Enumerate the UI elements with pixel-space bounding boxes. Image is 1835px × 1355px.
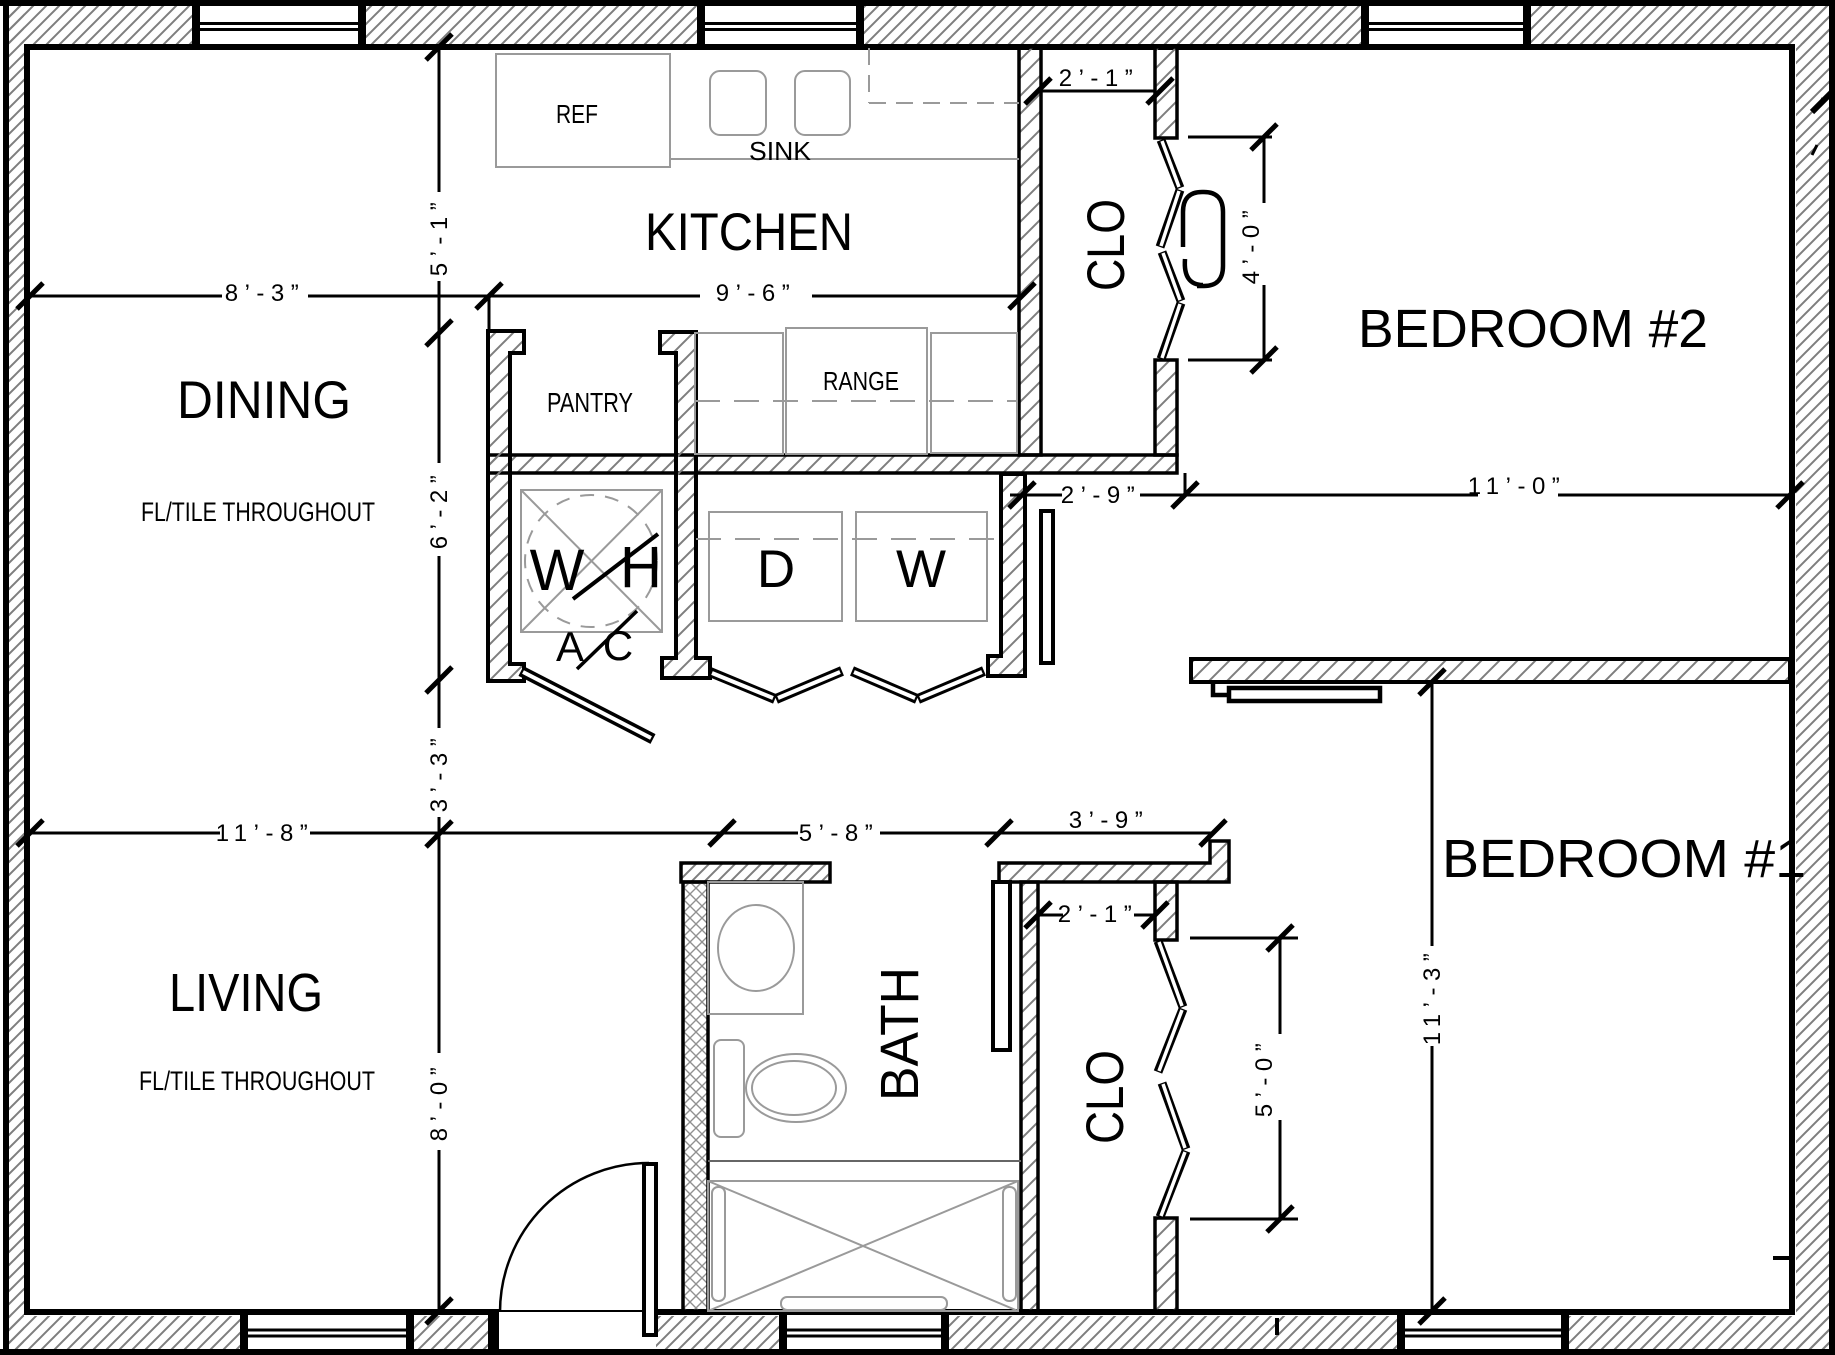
svg-text:DINING: DINING <box>177 371 351 430</box>
svg-text:5’-1”: 5’-1” <box>426 196 453 277</box>
svg-text:9’-6”: 9’-6” <box>716 280 797 307</box>
svg-text:BEDROOM #1: BEDROOM #1 <box>1442 829 1806 889</box>
svg-text:W: W <box>530 538 585 603</box>
svg-text:2’-1”: 2’-1” <box>1059 65 1140 92</box>
svg-text:8’-0”: 8’-0” <box>426 1061 453 1142</box>
svg-text:2’-9”: 2’-9” <box>1061 482 1142 509</box>
svg-text:11’-0”: 11’-0” <box>1468 473 1567 500</box>
svg-text:2’-1”: 2’-1” <box>1058 901 1139 928</box>
svg-text:LIVING: LIVING <box>169 963 323 1023</box>
svg-text:6’-2”: 6’-2” <box>426 469 453 550</box>
svg-text:11’-3”: 11’-3” <box>1419 947 1446 1046</box>
svg-text:SINK: SINK <box>749 136 812 166</box>
svg-text:5’-8”: 5’-8” <box>799 820 880 847</box>
svg-text:RANGE: RANGE <box>823 366 899 396</box>
svg-text:FL/TILE THROUGHOUT: FL/TILE THROUGHOUT <box>141 497 375 527</box>
svg-text:A: A <box>556 623 584 670</box>
svg-text:KITCHEN: KITCHEN <box>645 203 853 262</box>
svg-text:CLO: CLO <box>1077 199 1136 291</box>
svg-text:4’-0”: 4’-0” <box>1238 204 1265 285</box>
svg-text:PANTRY: PANTRY <box>547 387 633 418</box>
svg-text:REF: REF <box>556 99 598 129</box>
svg-text:3’-3”: 3’-3” <box>426 732 453 813</box>
svg-text:11’-8”: 11’-8” <box>216 820 315 847</box>
svg-text:5’-0”: 5’-0” <box>1251 1037 1278 1118</box>
svg-text:D: D <box>757 540 795 599</box>
svg-text:BEDROOM #2: BEDROOM #2 <box>1358 299 1708 359</box>
svg-text:FL/TILE THROUGHOUT: FL/TILE THROUGHOUT <box>139 1066 375 1096</box>
svg-text:CLO: CLO <box>1076 1050 1135 1144</box>
svg-text:8’-3”: 8’-3” <box>225 280 306 307</box>
svg-text:3’-9”: 3’-9” <box>1069 807 1150 834</box>
svg-text:W: W <box>896 540 946 599</box>
svg-text:BATH: BATH <box>870 967 930 1101</box>
